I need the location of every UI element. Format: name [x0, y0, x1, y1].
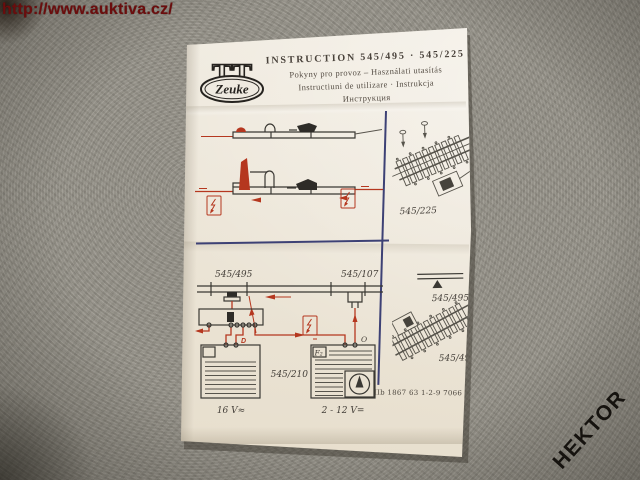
uncoupler-side-view-diagram — [193, 110, 385, 234]
transformer-dc-label: 2 - 12 V= — [321, 406, 365, 416]
coupler-hook — [297, 123, 317, 132]
uncoupler-ramp-lowered — [236, 127, 246, 132]
transformer-ac — [201, 343, 260, 398]
fuse-label: F₂ — [314, 349, 323, 358]
uncoupler-symbol — [417, 274, 463, 289]
feeder-track-caption: 545/225 — [399, 206, 437, 217]
uncoupler-symbol-caption: 545/495 — [432, 293, 470, 304]
lightning-bolt-icon — [207, 196, 221, 215]
header-block: INSTRUCTION 545/495 · 545/225 Pokyny pro… — [261, 48, 471, 109]
uncoupler-mechanism-box — [392, 312, 418, 336]
feeder-track-label: 545/107 — [341, 270, 379, 280]
photo-scene: TT Zeuke INSTRUCTION 545/495 · 545/225 P… — [0, 0, 640, 480]
zeuke-tt-logo: TT Zeuke — [196, 42, 268, 108]
uncoupler-ramp-raised — [239, 158, 250, 190]
terminal-o-label: O — [361, 335, 367, 344]
transformer-ac-label: 16 V≈ — [217, 406, 245, 416]
watermark-url: http://www.auktiva.cz/ — [2, 1, 173, 19]
feeder-track-sketch: 545/225 — [390, 108, 482, 223]
mounting-pin-icon — [421, 121, 428, 137]
knob-pointer-icon — [356, 376, 364, 388]
coupler-hook-raised — [296, 179, 317, 190]
mounting-pin-icon — [400, 130, 407, 146]
uncoupler-magnet — [227, 292, 237, 297]
paper-crease — [180, 427, 466, 444]
hektor-stamp: HEKTOR — [516, 356, 640, 480]
print-code: IIb 1867 63 1-2-9 7066 — [374, 389, 474, 398]
terminal-d-label: D — [241, 338, 246, 345]
uncoupler-track-label: 545/495 — [215, 270, 253, 280]
logo-brand-text: Zeuke — [214, 82, 248, 97]
controller-label: 545/210 — [271, 370, 309, 380]
wiring-diagram: 545/495 545/107 — [193, 256, 385, 428]
